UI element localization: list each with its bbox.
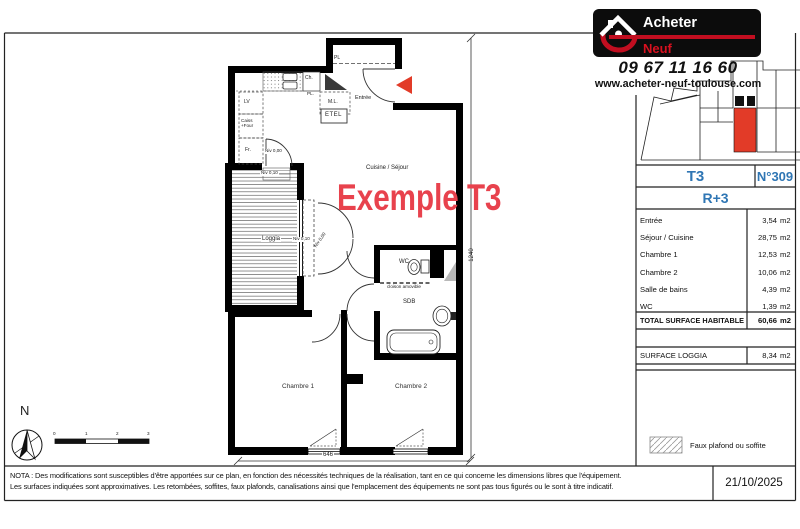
unit-number: N°309: [755, 165, 795, 187]
house-icon: [595, 11, 643, 57]
window-opening-symbols: [310, 429, 423, 446]
phone-number: 09 67 11 16 60: [595, 58, 761, 78]
brand-name-bottom: Neuf Toulouse.com: [643, 41, 761, 57]
scale-tick: 0: [53, 432, 56, 437]
compass-icon: [12, 430, 42, 460]
scale-tick: 1: [85, 432, 88, 437]
duct: [430, 245, 444, 278]
level-label: Niv 0,10: [260, 171, 279, 176]
washing-machine-label: M.L.: [328, 100, 338, 105]
level-label: Niv 0,10: [292, 237, 311, 242]
brand-name-top: Acheter: [643, 15, 697, 31]
total-surface-row: TOTAL SURFACE HABITABLE 60,66m2: [640, 312, 792, 329]
dishwasher-box: [239, 92, 263, 114]
legend-hatch-swatch: [650, 437, 682, 453]
scale-bar: [55, 439, 149, 444]
partition-label: cloison amovible: [386, 285, 422, 290]
level-label: Niv 0,00: [264, 149, 283, 154]
loggia-surface-row: SURFACE LOGGIA 8,34m2: [640, 347, 792, 364]
closet2-label: PL.: [307, 92, 314, 97]
brand-divider: [609, 35, 755, 39]
width-dimension: 646: [322, 452, 334, 458]
kitchen-sink-icon: [283, 74, 297, 81]
compass-north-label: N: [20, 404, 29, 417]
unit-type: T3: [636, 165, 755, 187]
highlighted-unit: [734, 108, 756, 152]
oven-label: Caiss+Four: [241, 119, 253, 128]
scale-tick: 3: [147, 432, 150, 437]
surface-table: Entrée3,54m2 Séjour / Cuisine28,75m2 Cha…: [640, 212, 792, 315]
nota-line2: Les surfaces indiquées sont approximativ…: [10, 481, 708, 492]
legend-label: Faux plafond ou soffite: [690, 441, 766, 450]
bedroom2-label: Chambre 2: [395, 384, 427, 391]
fridge-label: Fr.: [245, 148, 251, 153]
nota-line1: NOTA : Des modifications sont susceptibl…: [10, 470, 708, 481]
plan-sheet: Acheter Neuf Toulouse.com 09 67 11 16 60…: [0, 0, 800, 529]
watermark-text: Exemple T3: [337, 177, 502, 219]
fridge-box: [239, 138, 263, 164]
boiler-label: Ch.: [305, 76, 313, 81]
bedroom1-label: Chambre 1: [282, 384, 314, 391]
nota-text: NOTA : Des modifications sont susceptibl…: [10, 470, 708, 493]
wc-label: WC: [399, 259, 409, 265]
entrance-label: Entrée: [355, 96, 371, 102]
entrance-arrow-icon: [396, 76, 412, 94]
bathroom-fixtures: [387, 260, 456, 355]
height-dimension: 1240: [469, 241, 475, 269]
closet-label: PL: [334, 56, 340, 61]
living-room-label: Cuisine / Séjour: [366, 165, 408, 171]
dishwasher-label: LV: [244, 100, 250, 105]
table-row: Chambre 112,53m2: [640, 246, 792, 263]
brand-logo: Acheter Neuf Toulouse.com: [593, 9, 761, 57]
etel-label: ETEL: [325, 112, 342, 118]
website-url: www.acheter-neuf-toulouse.com: [593, 78, 763, 90]
table-row: Entrée3,54m2: [640, 212, 792, 229]
loggia-label: Loggia: [261, 236, 281, 242]
shelf-wedge: [325, 74, 347, 90]
scale-tick: 2: [116, 432, 119, 437]
unit-floor: R+3: [636, 187, 795, 209]
table-row: Salle de bains4,39m2: [640, 281, 792, 298]
table-row: Chambre 210,06m2: [640, 264, 792, 281]
plan-date: 21/10/2025: [713, 469, 795, 497]
bathroom-label: SDB: [403, 299, 415, 305]
table-row: Séjour / Cuisine28,75m2: [640, 229, 792, 246]
duct-shading: [444, 262, 456, 281]
